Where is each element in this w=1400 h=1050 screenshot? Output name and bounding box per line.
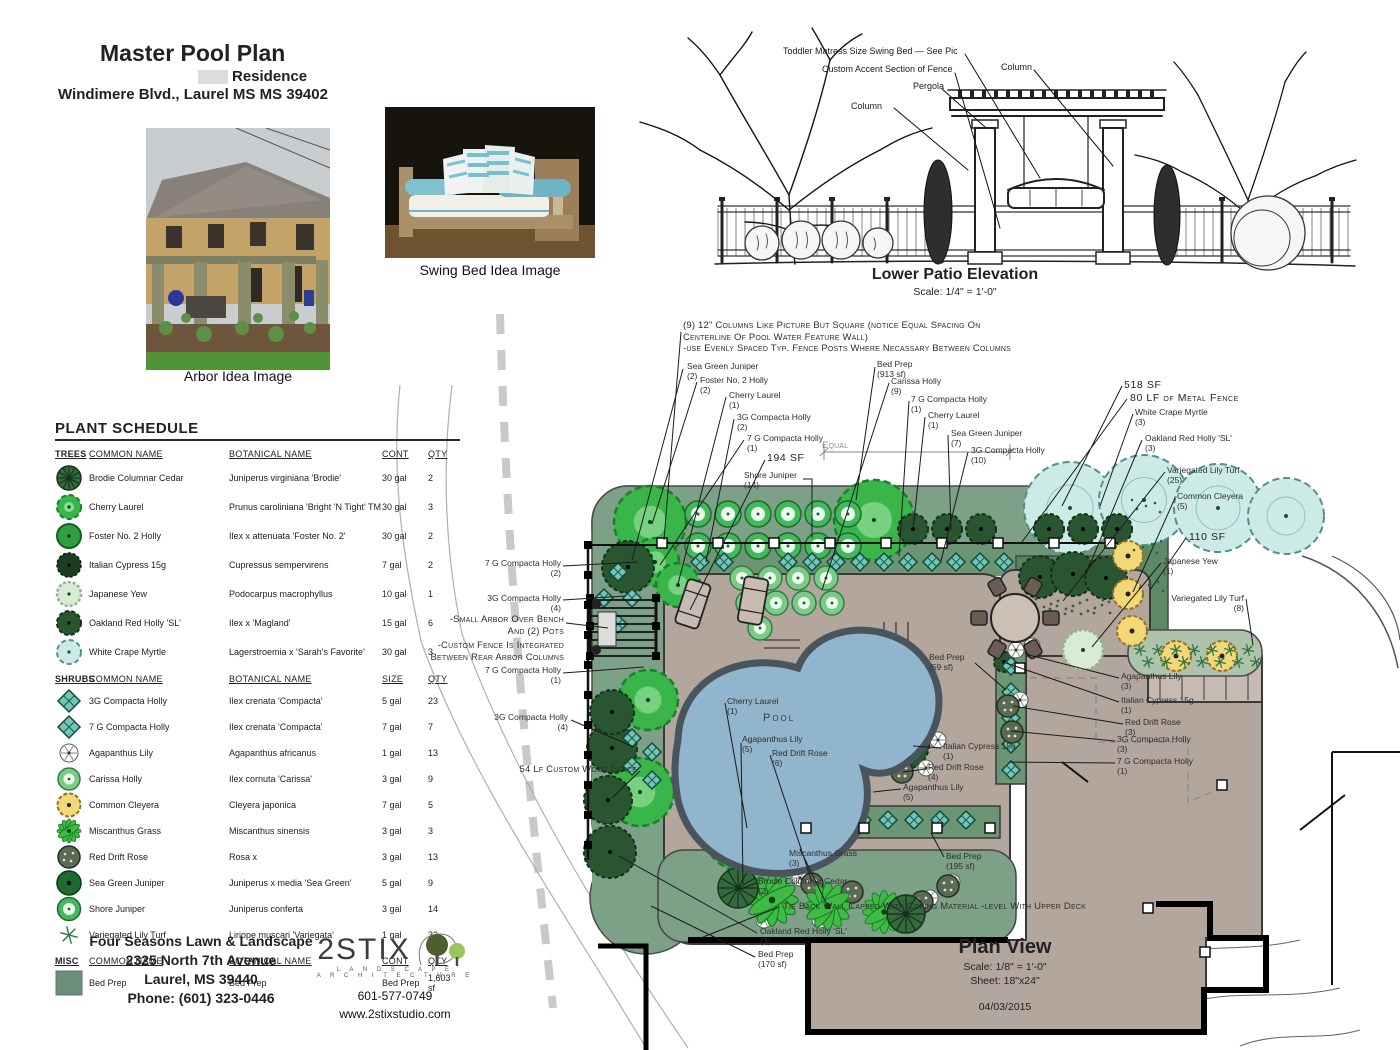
- schedule-cell: 5: [428, 800, 460, 810]
- schedule-cell: 3 gal: [382, 826, 428, 836]
- schedule-cell: Agapanthus Lily: [89, 748, 229, 758]
- schedule-cell: 10 gal: [382, 589, 428, 599]
- schedule-cell: Cleyera japonica: [229, 800, 382, 810]
- swing-bed: [1008, 116, 1104, 208]
- schedule-cell: 13: [428, 852, 460, 862]
- schedule-cell: 7 gal: [382, 722, 428, 732]
- schedule-cell: Juniperus conferta: [229, 904, 382, 914]
- schedule-row: Italian Cypress 15gCupressus semperviren…: [55, 550, 460, 579]
- schedule-cell: 3 gal: [382, 904, 428, 914]
- schedule-cell: 3: [428, 502, 460, 512]
- schedule-cell: 30 gal: [382, 531, 428, 541]
- schedule-cell: 23: [428, 696, 460, 706]
- schedule-cell: Brodie Columnar Cedar: [89, 473, 229, 483]
- cleyera-icon: [55, 792, 83, 818]
- schedule-cell: 13: [428, 748, 460, 758]
- plant-schedule-title: PLANT SCHEDULE: [55, 420, 460, 441]
- arbor-idea-photo: [146, 128, 330, 370]
- schedule-cell: Miscanthus sinensis: [229, 826, 382, 836]
- schedule-row: White Crape MyrtleLagerstroemia x 'Sarah…: [55, 637, 460, 666]
- schedule-section-heading: SHRUBSCOMMON NAMEBOTANICAL NAMESIZEQTY: [55, 674, 460, 684]
- plan-scale: Scale: 1/8" = 1'-0": [915, 961, 1095, 973]
- swing-photo-caption: Swing Bed Idea Image: [385, 262, 595, 278]
- schedule-cell: White Crape Myrtle: [89, 647, 229, 657]
- oakland-holly-icon: [55, 610, 83, 636]
- compacta-holly-icon: [55, 688, 83, 714]
- plan-sheet-size: Sheet: 18"x24": [915, 975, 1095, 987]
- schedule-cell: 3 gal: [382, 852, 428, 862]
- sheet-address: Windimere Blvd., Laurel MS MS 39402: [58, 86, 408, 103]
- agapanthus-icon: [55, 740, 83, 766]
- plan-title-block: Plan View Scale: 1/8" = 1'-0" Sheet: 18"…: [915, 936, 1095, 1013]
- elevation-drawing: [640, 28, 1356, 270]
- schedule-cell: 30 gal: [382, 502, 428, 512]
- schedule-cell: 6: [428, 618, 460, 628]
- schedule-cell: 9: [428, 774, 460, 784]
- schedule-row: Common CleyeraCleyera japonica7 gal5: [55, 792, 460, 818]
- schedule-row: Brodie Columnar CedarJuniperus virginian…: [55, 463, 460, 492]
- schedule-cell: 7 gal: [382, 800, 428, 810]
- plan-sheet: Master Pool Plan Residence Windimere Blv…: [0, 0, 1400, 1050]
- schedule-cell: Italian Cypress 15g: [89, 560, 229, 570]
- schedule-cell: Carissa Holly: [89, 774, 229, 784]
- sea-green-juniper-icon: [55, 870, 83, 896]
- schedule-cell: 5 gal: [382, 696, 428, 706]
- schedule-row: Shore JuniperJuniperus conferta3 gal14: [55, 896, 460, 922]
- schedule-cell: Oakland Red Holly 'SL': [89, 618, 229, 628]
- schedule-cell: Cherry Laurel: [89, 502, 229, 512]
- schedule-cell: 7: [428, 722, 460, 732]
- arbor-photo-caption: Arbor Idea Image: [146, 368, 330, 384]
- schedule-cell: 3G Compacta Holly: [89, 696, 229, 706]
- schedule-row: Carissa HollyIlex cornuta 'Carissa'3 gal…: [55, 766, 460, 792]
- schedule-cell: 3: [428, 647, 460, 657]
- schedule-cell: Ilex cornuta 'Carissa': [229, 774, 382, 784]
- schedule-cell: Ilex x 'Magland': [229, 618, 382, 628]
- plan-title: Plan View: [915, 936, 1095, 959]
- schedule-cell: Juniperus x media 'Sea Green': [229, 878, 382, 888]
- schedule-cell: 3: [428, 826, 460, 836]
- schedule-cell: Foster No. 2 Holly: [89, 531, 229, 541]
- schedule-cell: 7 G Compacta Holly: [89, 722, 229, 732]
- schedule-row: Japanese YewPodocarpus macrophyllus10 ga…: [55, 579, 460, 608]
- logo-phone: 601-577-0749: [300, 989, 490, 1003]
- schedule-row: 7 G Compacta HollyIlex crenata 'Compacta…: [55, 714, 460, 740]
- compacta-holly-icon: [55, 714, 83, 740]
- sheet-subtitle: Residence: [232, 68, 307, 85]
- schedule-row: Oakland Red Holly 'SL'Ilex x 'Magland'15…: [55, 608, 460, 637]
- schedule-cell: Common Cleyera: [89, 800, 229, 810]
- schedule-cell: Ilex crenata 'Compacta': [229, 722, 382, 732]
- schedule-cell: Prunus caroliniana 'Bright 'N Tight' TM: [229, 502, 382, 512]
- red-drift-rose-icon: [55, 844, 83, 870]
- title-block: Master Pool Plan Residence Windimere Blv…: [58, 40, 408, 103]
- schedule-cell: 30 gal: [382, 647, 428, 657]
- schedule-cell: 5 gal: [382, 878, 428, 888]
- schedule-cell: 3 gal: [382, 774, 428, 784]
- plant-schedule: PLANT SCHEDULE TREESCOMMON NAMEBOTANICAL…: [55, 420, 460, 996]
- elevation-scale: Scale: 1/4" = 1'-0": [840, 286, 1070, 298]
- miscanthus-icon: [55, 818, 83, 844]
- japanese-yew-icon: [55, 581, 83, 607]
- schedule-row: Sea Green JuniperJuniperus x media 'Sea …: [55, 870, 460, 896]
- schedule-row: Foster No. 2 HollyIlex x attenuata 'Fost…: [55, 521, 460, 550]
- schedule-cell: 14: [428, 904, 460, 914]
- brodie-cedar-icon: [55, 465, 83, 491]
- schedule-cell: Miscanthus Grass: [89, 826, 229, 836]
- pergola: [948, 90, 1166, 264]
- schedule-cell: Ilex x attenuata 'Foster No. 2': [229, 531, 382, 541]
- schedule-cell: Shore Juniper: [89, 904, 229, 914]
- carissa-holly-icon: [55, 766, 83, 792]
- equal-dimension: [820, 444, 1014, 460]
- schedule-cell: 1 gal: [382, 748, 428, 758]
- schedule-row: Miscanthus GrassMiscanthus sinensis3 gal…: [55, 818, 460, 844]
- elevation-title-block: Lower Patio Elevation Scale: 1/4" = 1'-0…: [840, 266, 1070, 298]
- elevation-title: Lower Patio Elevation: [840, 266, 1070, 284]
- schedule-cell: 30 gal: [382, 473, 428, 483]
- cherry-laurel-icon: [55, 494, 83, 520]
- schedule-row: Agapanthus LilyAgapanthus africanus1 gal…: [55, 740, 460, 766]
- schedule-cell: Rosa x: [229, 852, 382, 862]
- swing-bed-photo: [385, 107, 595, 258]
- schedule-row: Red Drift RoseRosa x3 gal13: [55, 844, 460, 870]
- redacted-name-box: [198, 70, 228, 84]
- logo-sub2: A R C H I T E C T U R E: [300, 973, 490, 979]
- schedule-cell: 15 gal: [382, 618, 428, 628]
- schedule-cell: Agapanthus africanus: [229, 748, 382, 758]
- schedule-cell: 2: [428, 473, 460, 483]
- schedule-cell: 2: [428, 560, 460, 570]
- schedule-cell: Ilex crenata 'Compacta': [229, 696, 382, 706]
- crape-myrtle-bed: [1024, 455, 1324, 554]
- schedule-cell: Lagerstroemia x 'Sarah's Favorite': [229, 647, 382, 657]
- schedule-cell: Podocarpus macrophyllus: [229, 589, 382, 599]
- schedule-cell: Red Drift Rose: [89, 852, 229, 862]
- logo-wordmark: 2STIX: [317, 933, 410, 967]
- schedule-cell: Juniperus virginiana 'Brodie': [229, 473, 382, 483]
- italian-cypress-icon: [55, 552, 83, 578]
- schedule-cell: 1: [428, 589, 460, 599]
- schedule-row: Cherry LaurelPrunus caroliniana 'Bright …: [55, 492, 460, 521]
- schedule-cell: Sea Green Juniper: [89, 878, 229, 888]
- foster-holly-icon: [55, 523, 83, 549]
- logo-trees-icon: [415, 925, 473, 967]
- sheet-title: Master Pool Plan: [100, 40, 408, 67]
- crape-myrtle-icon: [55, 639, 83, 665]
- studio-logo: 2STIX L A N D S C A P E A R C H I T E C …: [300, 925, 490, 1021]
- schedule-cell: Cupressus sempervirens: [229, 560, 382, 570]
- plan-date: 04/03/2015: [915, 1001, 1095, 1013]
- schedule-row: 3G Compacta HollyIlex crenata 'Compacta'…: [55, 688, 460, 714]
- logo-website: www.2stixstudio.com: [300, 1007, 490, 1021]
- shore-juniper-icon: [55, 896, 83, 922]
- schedule-section-heading: TREESCOMMON NAMEBOTANICAL NAMECONTQTY: [55, 449, 460, 459]
- schedule-cell: 9: [428, 878, 460, 888]
- schedule-cell: 2: [428, 531, 460, 541]
- schedule-cell: 7 gal: [382, 560, 428, 570]
- schedule-cell: Japanese Yew: [89, 589, 229, 599]
